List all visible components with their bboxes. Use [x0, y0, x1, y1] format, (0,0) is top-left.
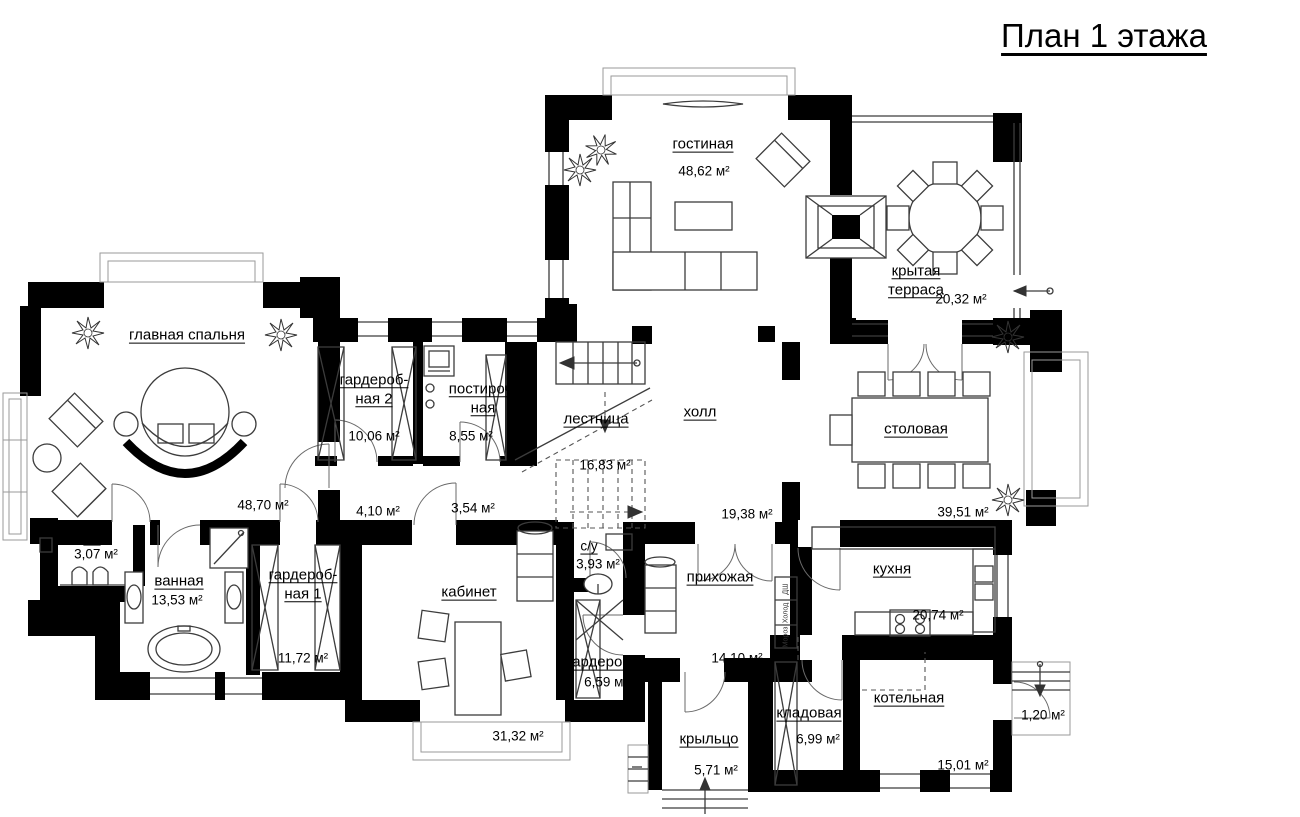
terrace-table-icon	[887, 162, 1003, 274]
area-ext-stairs: 1,20 м²	[1021, 708, 1065, 725]
room-name-bedroom: главная спальня	[129, 327, 245, 346]
appliance-label-fridge: Холод	[783, 603, 790, 623]
room-name-stairs: лестница	[563, 411, 628, 430]
hallway-bench-icon	[645, 557, 676, 633]
area-corridor-1: 4,10 м²	[356, 504, 400, 521]
room-area-boiler: 15,01 м²	[937, 758, 988, 775]
room-name-pantry: кладовая	[776, 705, 841, 724]
bathtub-icon	[148, 626, 220, 672]
room-name-su1: с/у	[83, 530, 100, 547]
coffee-table-icon	[675, 202, 732, 230]
room-area-wardrobe1: 11,72 м²	[278, 651, 328, 668]
armchair-icon	[756, 133, 810, 187]
room-area-dining: 39,51 м²	[937, 505, 988, 522]
office-sofa-icon	[517, 522, 553, 601]
room-area-terrace: 20,32 м²	[935, 292, 986, 309]
room-name-hall: холл	[684, 404, 717, 423]
room-area-bath: 13,53 м²	[151, 593, 202, 610]
room-name-garderob: гардероб	[567, 654, 631, 673]
appliance-label-freezer: Мороз	[783, 627, 790, 648]
floor-plan: План 1 этажа гостиная 48,62 м² крытая те…	[0, 0, 1300, 817]
area-corridor-2: 3,54 м²	[451, 501, 495, 518]
room-area-su2: 3,93 м²	[576, 557, 620, 574]
room-name-wardrobe1: гардероб- ная 1	[269, 566, 338, 604]
room-area-bedroom: 48,70 м²	[237, 498, 288, 515]
porch-steps-icon	[628, 745, 710, 814]
room-name-wardrobe2: гардероб- ная 2	[340, 371, 409, 409]
tv-icon	[663, 101, 743, 107]
office-desk-icon	[418, 610, 531, 715]
room-name-hallway: прихожая	[687, 569, 754, 588]
room-name-porch: крыльцо	[679, 731, 738, 750]
room-area-hallway: 14,10 м²	[711, 651, 762, 668]
room-area-living: 48,62 м²	[678, 164, 729, 181]
page-title: План 1 этажа	[1001, 17, 1207, 55]
room-area-stairs: 16,83 м²	[579, 458, 630, 475]
room-area-laundry: 8,55 м²	[449, 429, 493, 446]
room-area-porch: 5,71 м²	[694, 763, 738, 780]
room-name-boiler: котельная	[874, 690, 945, 709]
living-sofa-icon	[613, 182, 757, 290]
bedroom-armchairs-icon	[33, 393, 106, 517]
room-name-dining: столовая	[884, 421, 948, 440]
room-area-office: 31,32 м²	[492, 729, 543, 746]
shower-icon	[210, 528, 248, 568]
room-name-su2: с/у	[580, 539, 597, 556]
room-area-su1: 3,07 м²	[74, 547, 118, 564]
room-name-office: кабинет	[441, 584, 496, 603]
floorplan-drawing	[0, 0, 1300, 817]
room-area-hall: 19,38 м²	[721, 507, 772, 524]
bed-icon	[114, 368, 256, 474]
fireplace-icon	[806, 196, 886, 258]
room-name-bath: ванная	[154, 573, 203, 592]
room-area-pantry: 6,99 м²	[796, 732, 840, 749]
room-area-garderob: 6,59 м²	[584, 675, 628, 692]
appliance-label-dishwasher: ДШ	[783, 583, 790, 594]
room-name-kitchen: кухня	[873, 561, 911, 580]
room-area-kitchen: 20,74 м²	[912, 608, 963, 625]
room-name-laundry: постироч- ная	[449, 380, 517, 418]
room-area-wardrobe2: 10,06 м²	[348, 429, 399, 446]
room-name-living: гостиная	[673, 136, 734, 155]
